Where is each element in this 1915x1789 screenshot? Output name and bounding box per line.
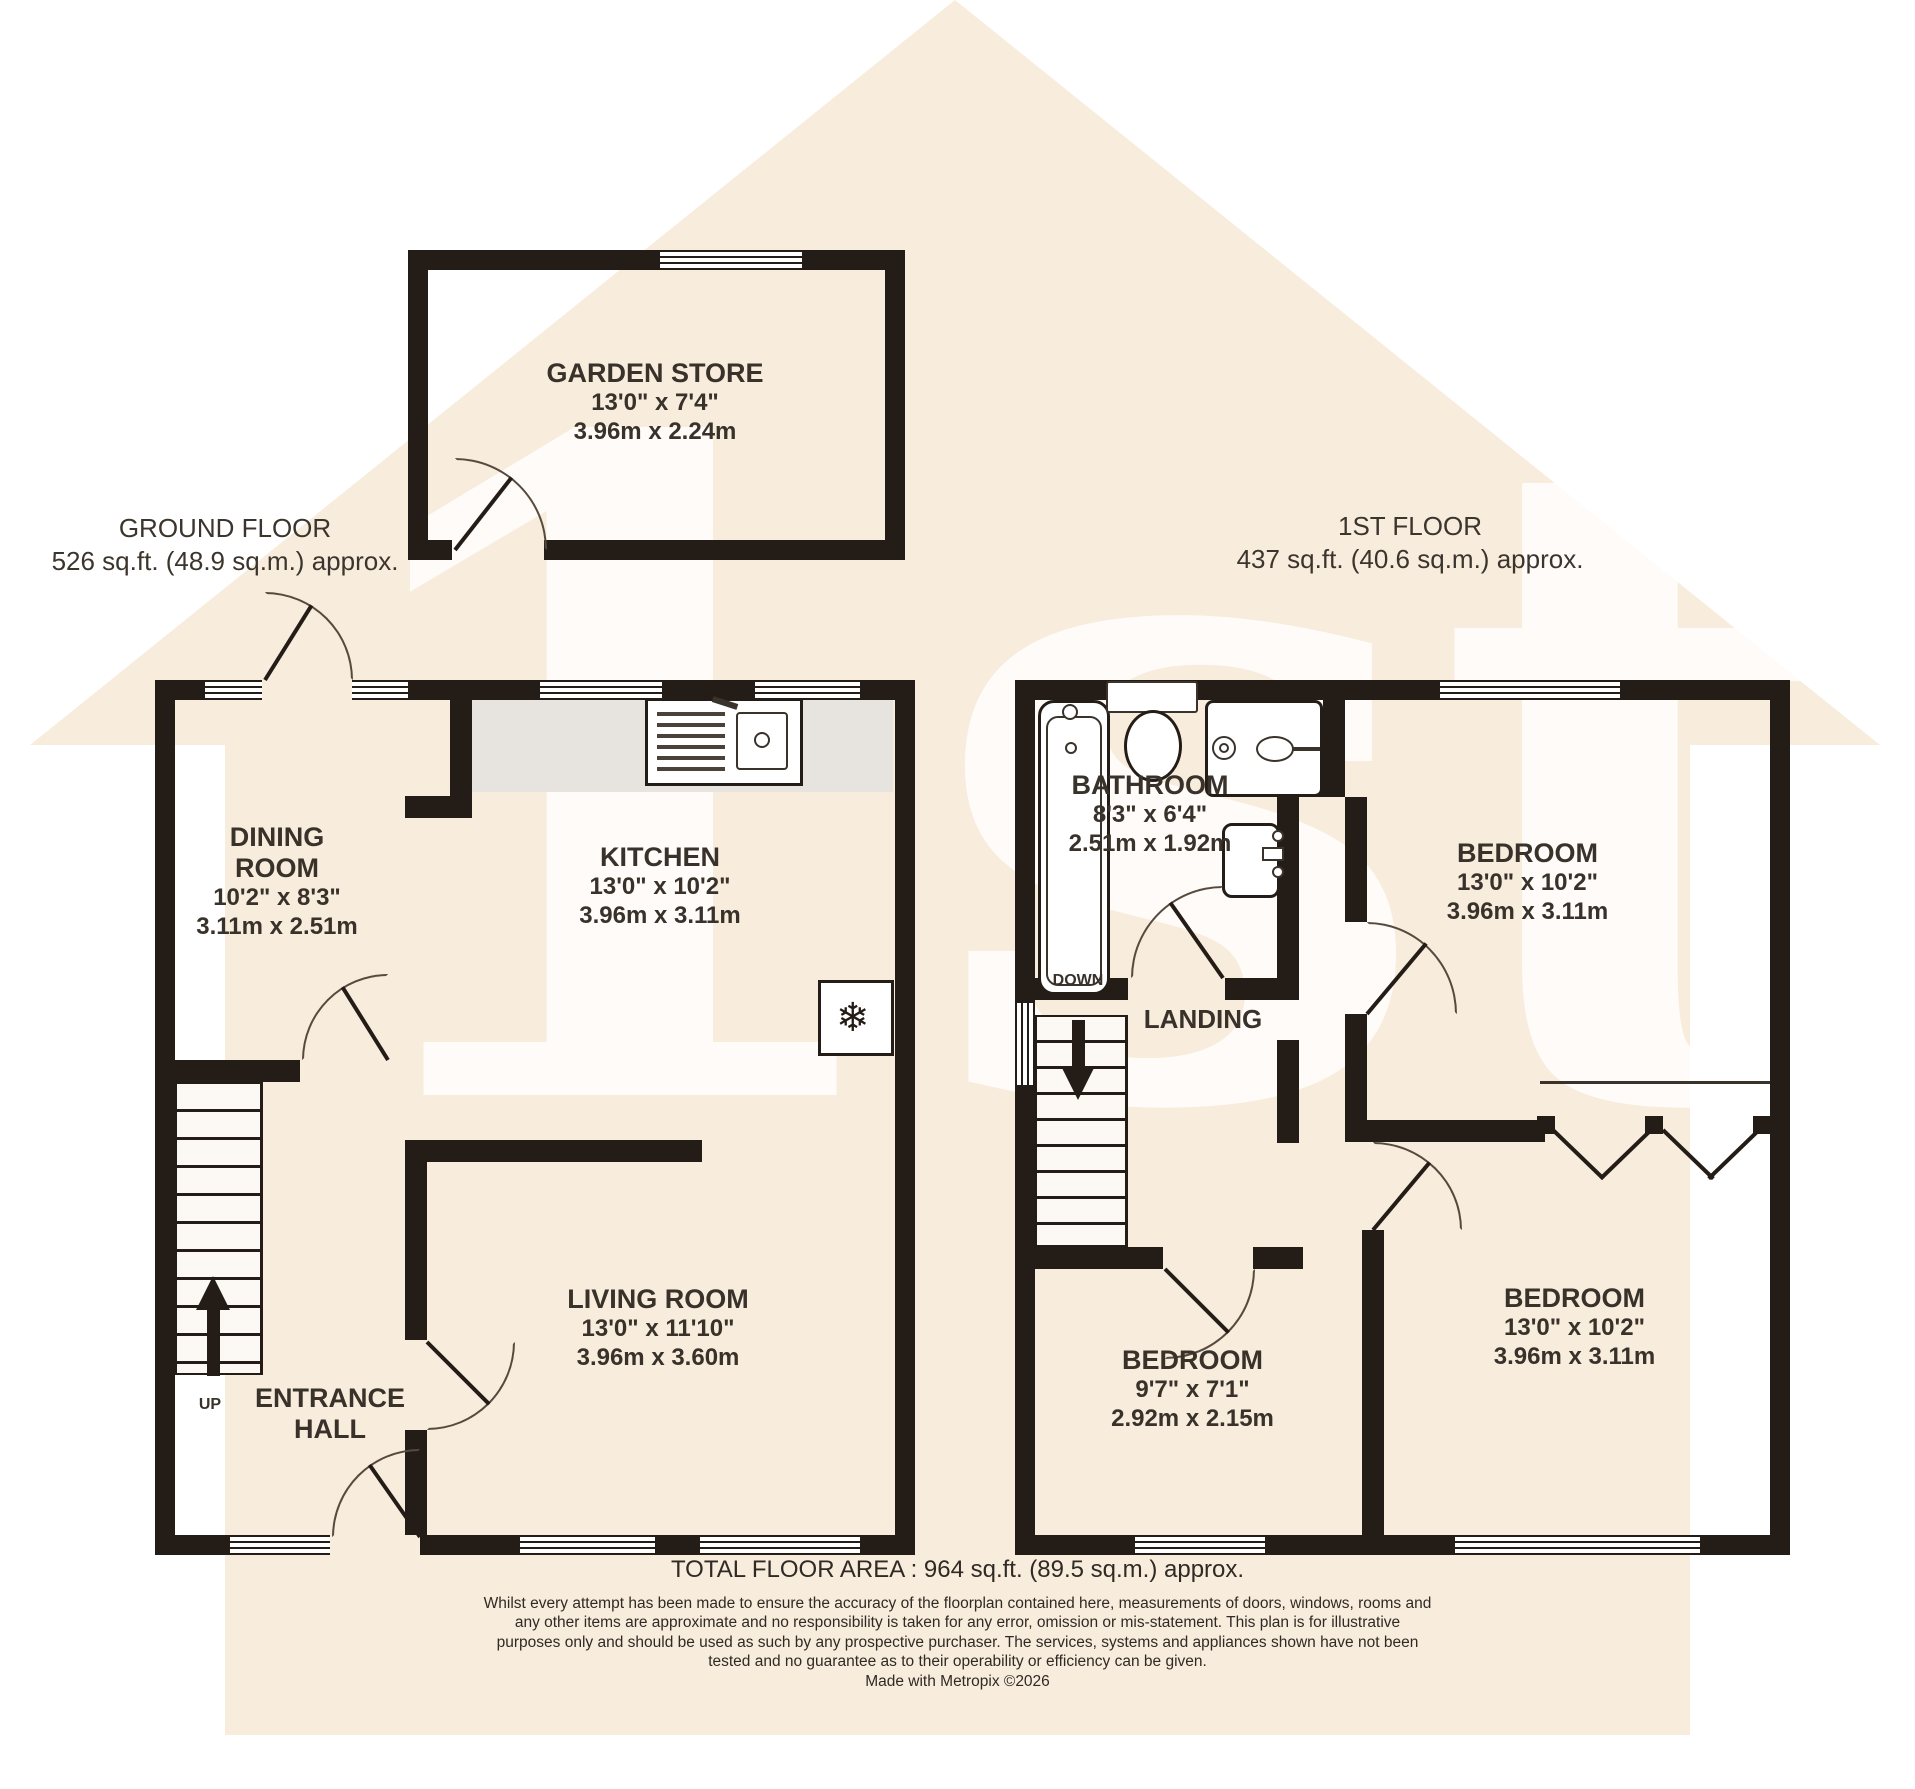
wall: [1015, 1535, 1135, 1555]
up-arrow: [207, 1308, 220, 1376]
wall: [860, 1535, 915, 1555]
wall: [1345, 797, 1367, 922]
room-dims-metric: 2.51m x 1.92m: [1069, 830, 1232, 859]
room-name: BEDROOM: [1122, 1345, 1263, 1376]
shower-head: [1256, 736, 1294, 762]
first-floor-area: 437 sq.ft. (40.6 sq.m.) approx.: [1225, 543, 1595, 576]
sink-drain: [754, 732, 770, 748]
window: [660, 250, 802, 270]
room-label-kitchen: KITCHEN 13'0" x 10'2" 3.96m x 3.11m: [555, 842, 765, 931]
room-dims-metric: 3.96m x 3.60m: [577, 1344, 740, 1373]
wall: [420, 1535, 520, 1555]
room-dims-metric: 3.96m x 3.11m: [579, 902, 740, 931]
room-name: BEDROOM: [1504, 1283, 1645, 1314]
room-dims-imperial: 9'7" x 7'1": [1135, 1376, 1249, 1405]
wall: [1620, 680, 1790, 700]
first-floor-heading: 1ST FLOOR 437 sq.ft. (40.6 sq.m.) approx…: [1225, 510, 1595, 575]
wall: [1015, 680, 1035, 1003]
room-dims-imperial: 13'0" x 10'2": [590, 873, 731, 902]
stairs-down-label: DOWN: [1030, 972, 1126, 990]
room-dims-metric: 3.11m x 2.51m: [196, 913, 357, 942]
down-arrow-head: [1061, 1066, 1095, 1100]
wall: [175, 1060, 300, 1082]
room-label-landing: LANDING: [1118, 1004, 1288, 1035]
window: [1135, 1535, 1265, 1555]
room-dims-imperial: 13'0" x 10'2": [1504, 1314, 1645, 1343]
room-label-bedroom-middle: BEDROOM 9'7" x 7'1" 2.92m x 2.15m: [1080, 1345, 1305, 1434]
room-dims-metric: 3.96m x 2.24m: [574, 418, 737, 447]
room-label-living-room: LIVING ROOM 13'0" x 11'10" 3.96m x 3.60m: [553, 1284, 763, 1373]
shower-control-dot: [1219, 743, 1229, 753]
metropix-credit: Made with Metropix ©2026: [0, 1672, 1915, 1691]
wall: [1225, 978, 1299, 1000]
window: [1455, 1535, 1700, 1555]
wall: [1700, 1535, 1790, 1555]
wall: [1770, 680, 1790, 1555]
wall: [155, 680, 175, 1555]
wall: [895, 680, 915, 1555]
ground-floor-title: GROUND FLOOR: [35, 512, 415, 545]
window: [755, 680, 860, 700]
wall: [1345, 1120, 1545, 1142]
sink-drainer-lines: [657, 712, 725, 774]
ground-floor-area: 526 sq.ft. (48.9 sq.m.) approx.: [35, 545, 415, 578]
room-dims-metric: 3.96m x 3.11m: [1494, 1343, 1655, 1372]
ground-floor-heading: GROUND FLOOR 526 sq.ft. (48.9 sq.m.) app…: [35, 512, 415, 577]
room-label-dining-room: DINING ROOM 10'2" x 8'3" 3.11m x 2.51m: [182, 822, 372, 942]
wardrobe-front-line: [1540, 1081, 1770, 1084]
wall: [405, 1140, 427, 1340]
room-dims-imperial: 8'3" x 6'4": [1093, 801, 1207, 830]
shower-arm: [1292, 747, 1320, 751]
wall: [1015, 1085, 1035, 1555]
floorplan: 1st GROUND FLOOR 526 sq.ft. (48.9 sq.m.)…: [0, 0, 1915, 1789]
room-dims-imperial: 13'0" x 11'10": [582, 1315, 735, 1344]
room-name: GARDEN STORE: [546, 358, 763, 389]
room-dims-metric: 2.92m x 2.15m: [1111, 1405, 1274, 1434]
total-floor-area: TOTAL FLOOR AREA : 964 sq.ft. (89.5 sq.m…: [0, 1556, 1915, 1584]
window: [520, 1535, 655, 1555]
room-name: KITCHEN: [600, 842, 720, 873]
wall: [655, 1535, 700, 1555]
wall: [1277, 775, 1299, 1000]
bath-tap: [1062, 704, 1078, 720]
bath-drain: [1065, 742, 1077, 754]
window: [205, 680, 262, 700]
wall: [1035, 1247, 1163, 1269]
room-name: LIVING ROOM: [567, 1284, 749, 1315]
wall: [408, 680, 540, 700]
wall: [405, 796, 450, 818]
room-name: DINING ROOM: [217, 822, 337, 884]
room-label-bedroom-front: BEDROOM 13'0" x 10'2" 3.96m x 3.11m: [1415, 838, 1640, 927]
basin-spout: [1262, 847, 1284, 861]
up-arrow-head: [196, 1276, 230, 1310]
room-label-garden-store: GARDEN STORE 13'0" x 7'4" 3.96m x 2.24m: [405, 358, 905, 447]
snowflake-icon: ❄: [836, 998, 870, 1038]
room-name: BEDROOM: [1457, 838, 1598, 869]
toilet-cistern: [1106, 681, 1198, 713]
window: [540, 680, 662, 700]
wall: [450, 700, 472, 818]
room-label-bedroom-back: BEDROOM 13'0" x 10'2" 3.96m x 3.11m: [1462, 1283, 1687, 1372]
window: [352, 680, 408, 700]
basin-tap: [1272, 866, 1284, 878]
room-dims-imperial: 13'0" x 10'2": [1457, 869, 1598, 898]
window: [1440, 680, 1620, 700]
first-floor-title: 1ST FLOOR: [1225, 510, 1595, 543]
wall: [408, 250, 660, 270]
room-dims-imperial: 10'2" x 8'3": [213, 884, 341, 913]
footer: TOTAL FLOOR AREA : 964 sq.ft. (89.5 sq.m…: [0, 1556, 1915, 1691]
wall: [155, 1535, 230, 1555]
room-name: ENTRANCE HALL: [250, 1383, 410, 1445]
room-dims-metric: 3.96m x 3.11m: [1447, 898, 1608, 927]
basin-tap: [1272, 830, 1284, 842]
room-label-entrance-hall: ENTRANCE HALL: [245, 1383, 415, 1445]
room-label-bathroom: BATHROOM 8'3" x 6'4" 2.51m x 1.92m: [1040, 770, 1260, 859]
wall: [1277, 1040, 1299, 1143]
down-arrow: [1072, 1020, 1085, 1068]
wall: [1253, 1247, 1303, 1269]
wall: [1265, 1535, 1455, 1555]
wall: [1362, 1230, 1384, 1555]
wall: [662, 680, 755, 700]
window: [230, 1535, 330, 1555]
stairs-up-label: UP: [180, 1396, 240, 1414]
window: [1015, 1003, 1035, 1085]
wall: [427, 1140, 702, 1162]
wall: [1015, 680, 1440, 700]
wall: [544, 540, 905, 560]
room-dims-imperial: 13'0" x 7'4": [591, 389, 719, 418]
room-name: BATHROOM: [1072, 770, 1229, 801]
window: [700, 1535, 860, 1555]
disclaimer-text: Whilst every attempt has been made to en…: [483, 1594, 1433, 1672]
